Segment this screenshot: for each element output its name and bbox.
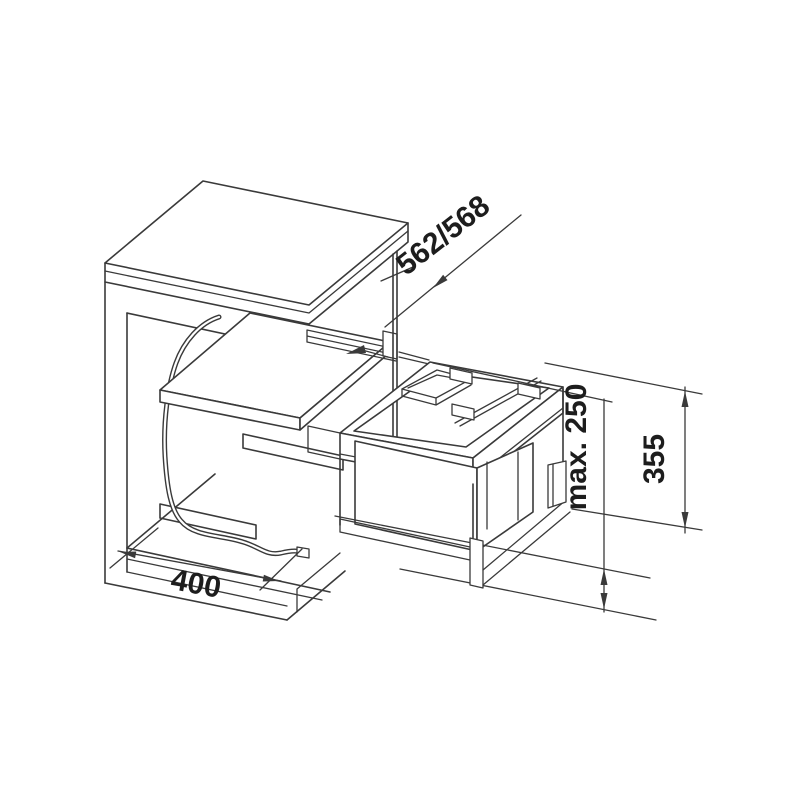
dimension-width: 400 [110,528,302,605]
technical-drawing-canvas: 562/568 355 max. 250 400 [0,0,800,800]
carriage-front-bracket [470,538,483,588]
floor-rail-rear [243,434,343,470]
frame-clip [452,404,474,420]
worktop [105,181,408,324]
dimension-max-clearance-label: max. 250 [560,384,593,511]
dimension-height-label: 355 [638,434,671,484]
dimension-depth: 562/568 [381,189,521,327]
floor-reference-line [400,569,656,620]
waste-bin-cabinet-drawing: 562/568 355 max. 250 400 [0,0,800,800]
